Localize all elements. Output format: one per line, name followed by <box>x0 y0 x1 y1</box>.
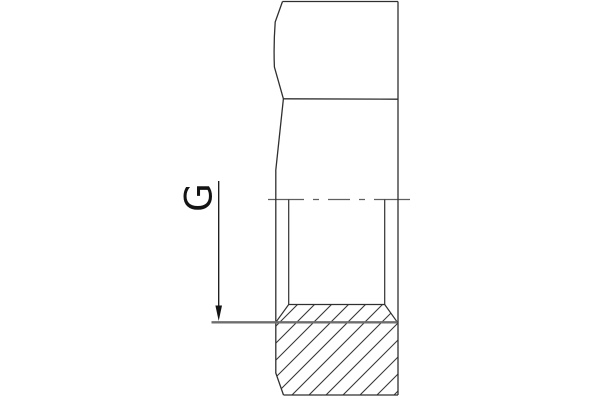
pipe-nut-technical-drawing: G <box>0 0 600 400</box>
drawing-canvas: G <box>0 0 600 400</box>
thread-dimension-label: G <box>178 183 221 212</box>
